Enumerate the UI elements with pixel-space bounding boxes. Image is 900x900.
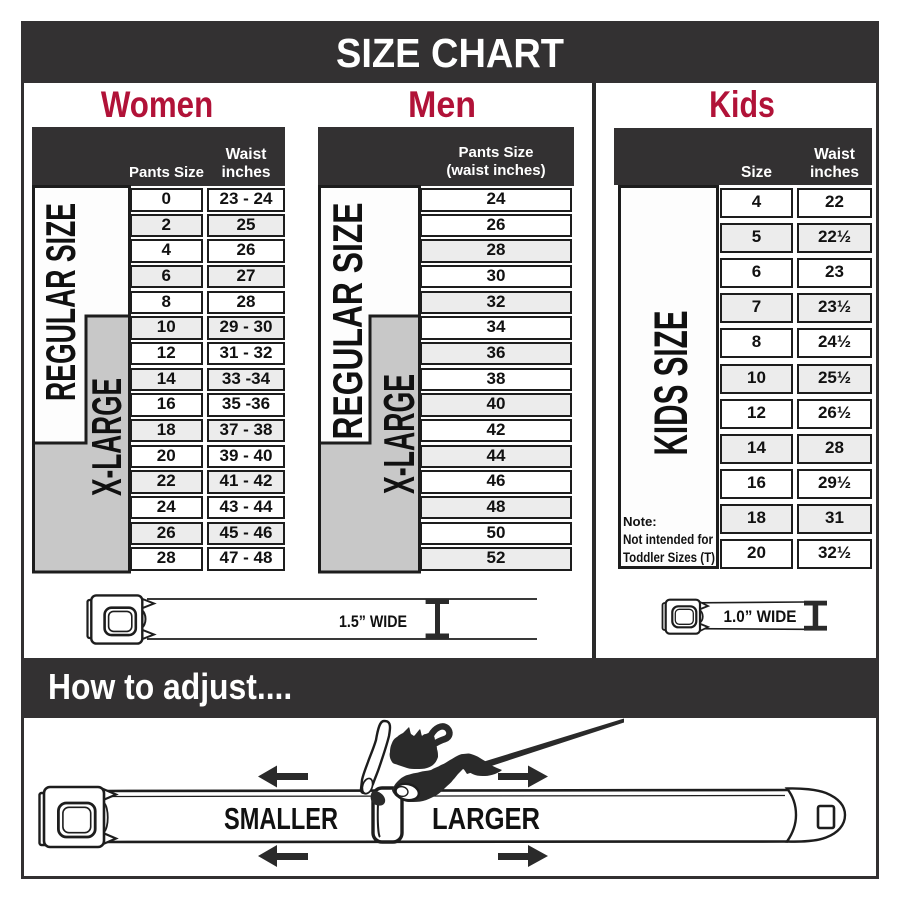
svg-text:REGULAR SIZE: REGULAR SIZE (324, 203, 371, 440)
svg-text:X-LARGE: X-LARGE (83, 378, 130, 496)
svg-text:Note:: Note: (623, 514, 657, 529)
svg-text:Toddler Sizes (T): Toddler Sizes (T) (623, 550, 715, 565)
svg-text:1.0” WIDE: 1.0” WIDE (724, 607, 797, 626)
svg-text:SMALLER: SMALLER (224, 801, 338, 836)
svg-text:LARGER: LARGER (432, 801, 540, 836)
svg-text:KIDS SIZE: KIDS SIZE (644, 311, 697, 456)
svg-text:REGULAR SIZE: REGULAR SIZE (37, 203, 84, 401)
svg-text:X-LARGE: X-LARGE (375, 374, 423, 494)
svg-text:1.5” WIDE: 1.5” WIDE (339, 612, 407, 631)
svg-text:Not intended for: Not intended for (623, 532, 714, 547)
